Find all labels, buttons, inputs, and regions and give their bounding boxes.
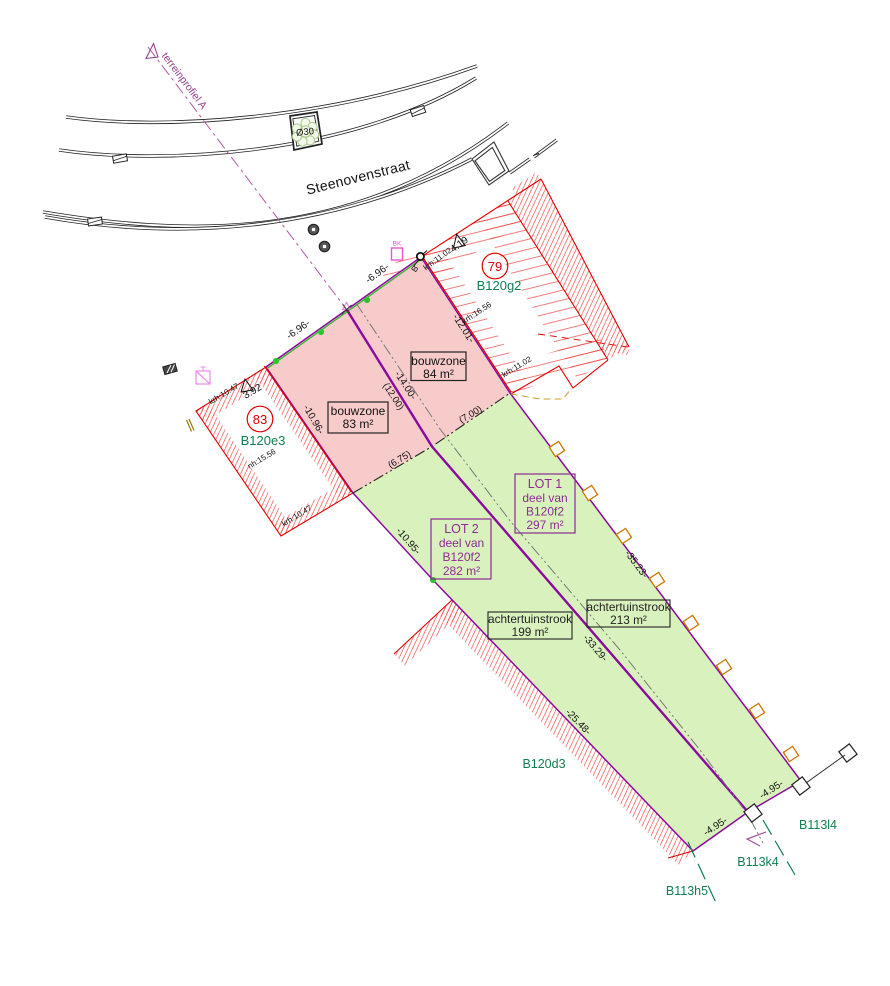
svg-text:LOT 2: LOT 2 bbox=[444, 522, 479, 536]
svg-text:84 m²: 84 m² bbox=[423, 367, 454, 381]
svg-text:B120f2: B120f2 bbox=[442, 550, 480, 564]
svg-text:297 m²: 297 m² bbox=[526, 518, 563, 532]
svg-text:achtertuinstrook: achtertuinstrook bbox=[587, 600, 671, 614]
svg-text:Ø30: Ø30 bbox=[296, 126, 315, 139]
svg-text:B120d3: B120d3 bbox=[522, 757, 565, 771]
svg-text:83: 83 bbox=[253, 412, 267, 427]
svg-text:deel van: deel van bbox=[439, 536, 484, 550]
svg-text:deel van: deel van bbox=[522, 491, 567, 505]
svg-text:B113l4: B113l4 bbox=[799, 818, 837, 832]
svg-text:B120g2: B120g2 bbox=[477, 278, 522, 293]
svg-text:bouwzone: bouwzone bbox=[411, 354, 466, 368]
svg-text:achtertuinstrook: achtertuinstrook bbox=[488, 612, 572, 626]
svg-text:B120f2: B120f2 bbox=[526, 505, 564, 519]
svg-text:bouwzone: bouwzone bbox=[331, 404, 386, 418]
svg-text:BK: BK bbox=[393, 241, 402, 248]
svg-text:83 m²: 83 m² bbox=[343, 417, 374, 431]
svg-text:199 m²: 199 m² bbox=[512, 625, 549, 639]
svg-text:213 m²: 213 m² bbox=[610, 613, 647, 627]
svg-text:B120e3: B120e3 bbox=[241, 433, 286, 448]
svg-text:282 m²: 282 m² bbox=[443, 564, 480, 578]
svg-text:B113k4: B113k4 bbox=[737, 855, 779, 869]
svg-text:LOT 1: LOT 1 bbox=[528, 477, 563, 491]
svg-text:B113h5: B113h5 bbox=[666, 884, 708, 898]
svg-text:79: 79 bbox=[488, 259, 502, 274]
